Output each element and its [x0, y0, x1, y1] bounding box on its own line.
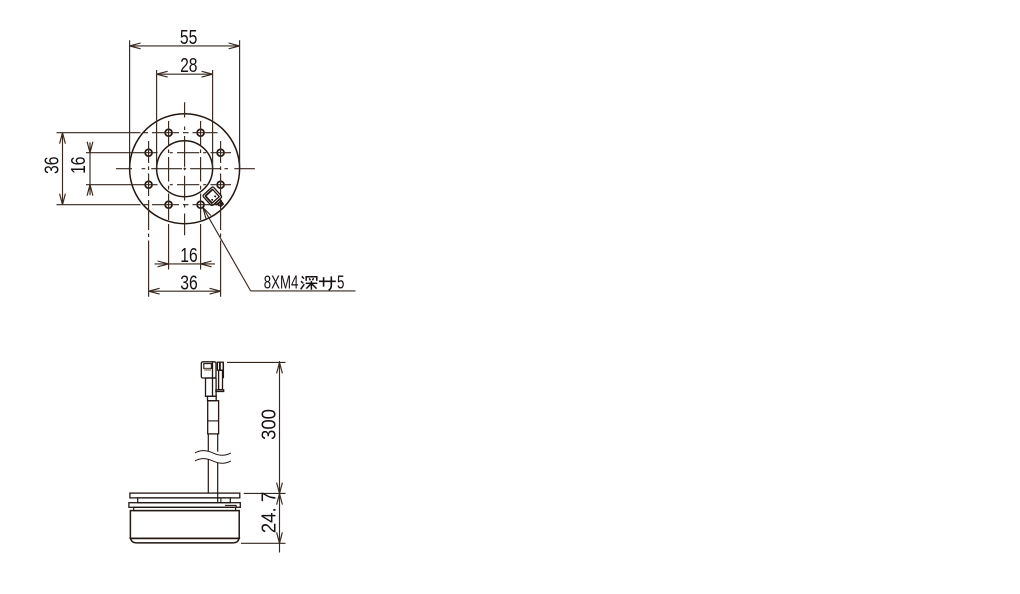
svg-text:36: 36 — [41, 156, 63, 174]
svg-text:16: 16 — [180, 245, 197, 267]
svg-text:24. 7: 24. 7 — [258, 492, 280, 534]
svg-text:300: 300 — [258, 409, 280, 440]
svg-text:16: 16 — [68, 157, 90, 174]
svg-text:55: 55 — [180, 27, 198, 49]
svg-text:28: 28 — [180, 55, 197, 77]
svg-text:36: 36 — [180, 272, 198, 294]
svg-text:8XM4: 8XM4 — [264, 273, 299, 293]
svg-text:5: 5 — [337, 273, 344, 293]
